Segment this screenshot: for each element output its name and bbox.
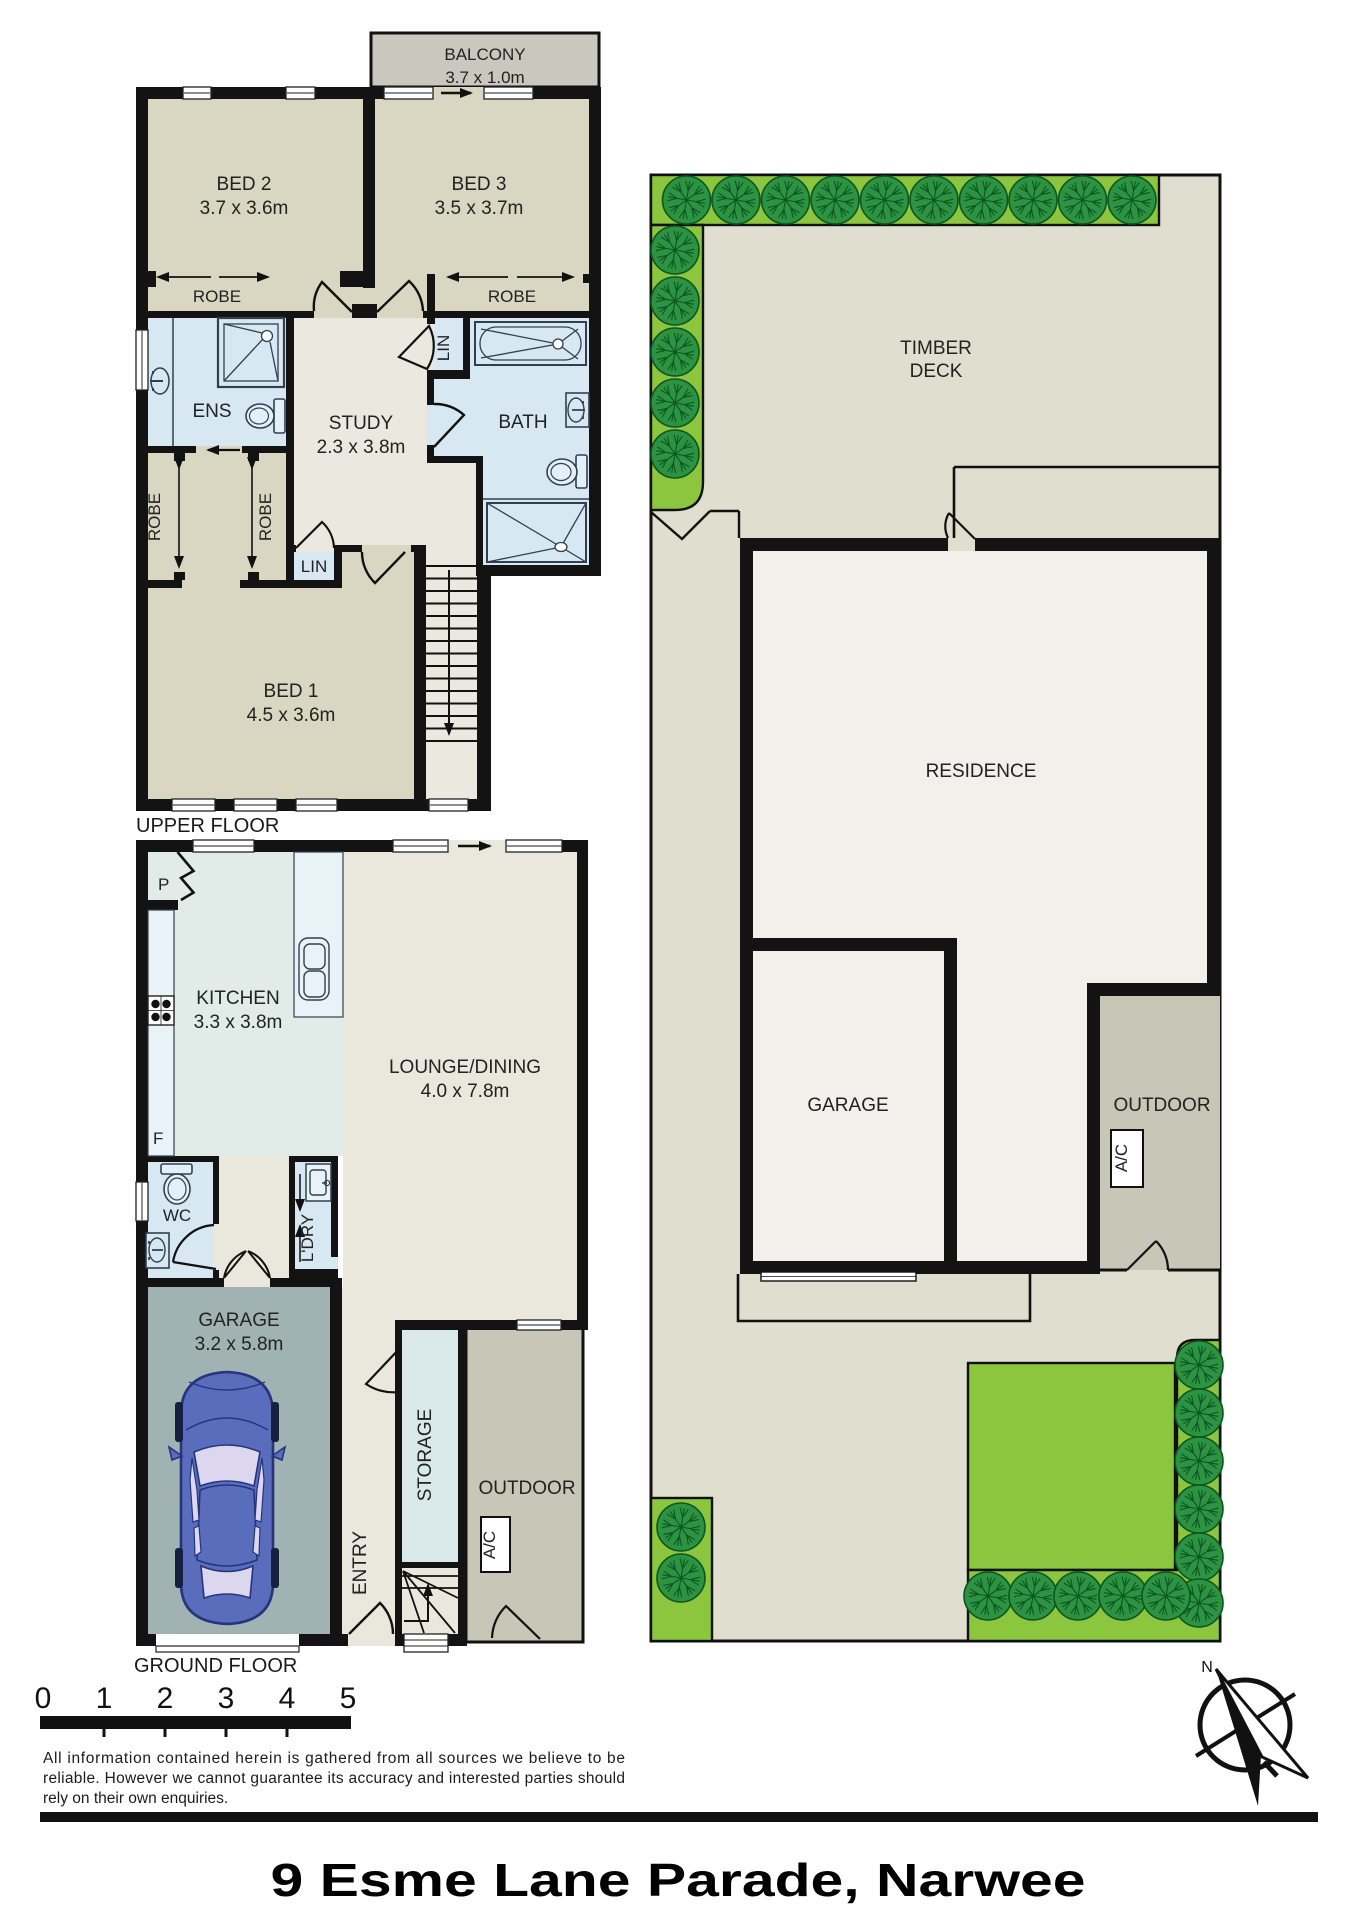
svg-text:5: 5 (340, 1682, 357, 1715)
svg-text:DECK: DECK (910, 361, 963, 382)
svg-text:3.2 x 5.8m: 3.2 x 5.8m (195, 1334, 284, 1355)
svg-text:L'DRY: L'DRY (298, 1214, 317, 1262)
svg-text:KITCHEN: KITCHEN (196, 988, 279, 1009)
svg-text:OUTDOOR: OUTDOOR (478, 1478, 575, 1499)
svg-text:GROUND FLOOR: GROUND FLOOR (134, 1655, 297, 1677)
svg-text:0: 0 (35, 1682, 52, 1715)
svg-text:STUDY: STUDY (329, 413, 394, 434)
svg-text:A/C: A/C (480, 1531, 499, 1559)
svg-text:GARAGE: GARAGE (807, 1095, 888, 1116)
svg-text:P: P (158, 875, 169, 894)
svg-text:ROBE: ROBE (256, 493, 275, 541)
svg-text:2.3 x 3.8m: 2.3 x 3.8m (317, 437, 406, 458)
svg-text:2: 2 (157, 1682, 174, 1715)
svg-text:BATH: BATH (498, 412, 547, 433)
svg-text:3.5 x 3.7m: 3.5 x 3.7m (435, 198, 524, 219)
svg-text:F: F (153, 1129, 163, 1148)
svg-text:ROBE: ROBE (145, 493, 164, 541)
svg-text:BALCONY: BALCONY (444, 45, 525, 64)
svg-text:N: N (1201, 1659, 1213, 1676)
svg-text:A/C: A/C (1112, 1144, 1131, 1172)
svg-text:OUTDOOR: OUTDOOR (1113, 1095, 1210, 1116)
svg-text:LIN: LIN (434, 335, 453, 361)
svg-text:BED 2: BED 2 (217, 174, 272, 195)
svg-text:4.0 x 7.8m: 4.0 x 7.8m (421, 1081, 510, 1102)
svg-text:RESIDENCE: RESIDENCE (926, 761, 1037, 782)
svg-text:UPPER FLOOR: UPPER FLOOR (136, 815, 279, 837)
svg-text:BED 3: BED 3 (452, 174, 507, 195)
svg-text:3.3 x 3.8m: 3.3 x 3.8m (194, 1012, 283, 1033)
svg-text:4.5 x 3.6m: 4.5 x 3.6m (247, 705, 336, 726)
svg-text:3: 3 (218, 1682, 235, 1715)
svg-text:STORAGE: STORAGE (415, 1409, 436, 1502)
svg-text:All information contained here: All information contained herein is gath… (43, 1750, 625, 1767)
svg-text:GARAGE: GARAGE (198, 1310, 279, 1331)
svg-text:WC: WC (163, 1206, 191, 1225)
svg-text:ROBE: ROBE (488, 287, 536, 306)
svg-text:9 Esme Lane Parade, Narwee: 9 Esme Lane Parade, Narwee (271, 1854, 1086, 1906)
svg-text:3.7 x 1.0m: 3.7 x 1.0m (445, 68, 524, 87)
svg-text:1: 1 (96, 1682, 113, 1715)
svg-text:3.7 x 3.6m: 3.7 x 3.6m (200, 198, 289, 219)
svg-text:ROBE: ROBE (193, 287, 241, 306)
svg-text:BED 1: BED 1 (264, 681, 319, 702)
svg-text:4: 4 (279, 1682, 296, 1715)
svg-text:LIN: LIN (301, 557, 327, 576)
svg-text:LOUNGE/DINING: LOUNGE/DINING (389, 1057, 541, 1078)
svg-text:reliable. However we cannot gu: reliable. However we cannot guarantee it… (43, 1770, 625, 1787)
svg-text:rely on their own enquiries.: rely on their own enquiries. (43, 1790, 228, 1807)
svg-text:ENTRY: ENTRY (350, 1531, 371, 1595)
svg-text:TIMBER: TIMBER (900, 338, 972, 359)
svg-text:ENS: ENS (192, 401, 231, 422)
